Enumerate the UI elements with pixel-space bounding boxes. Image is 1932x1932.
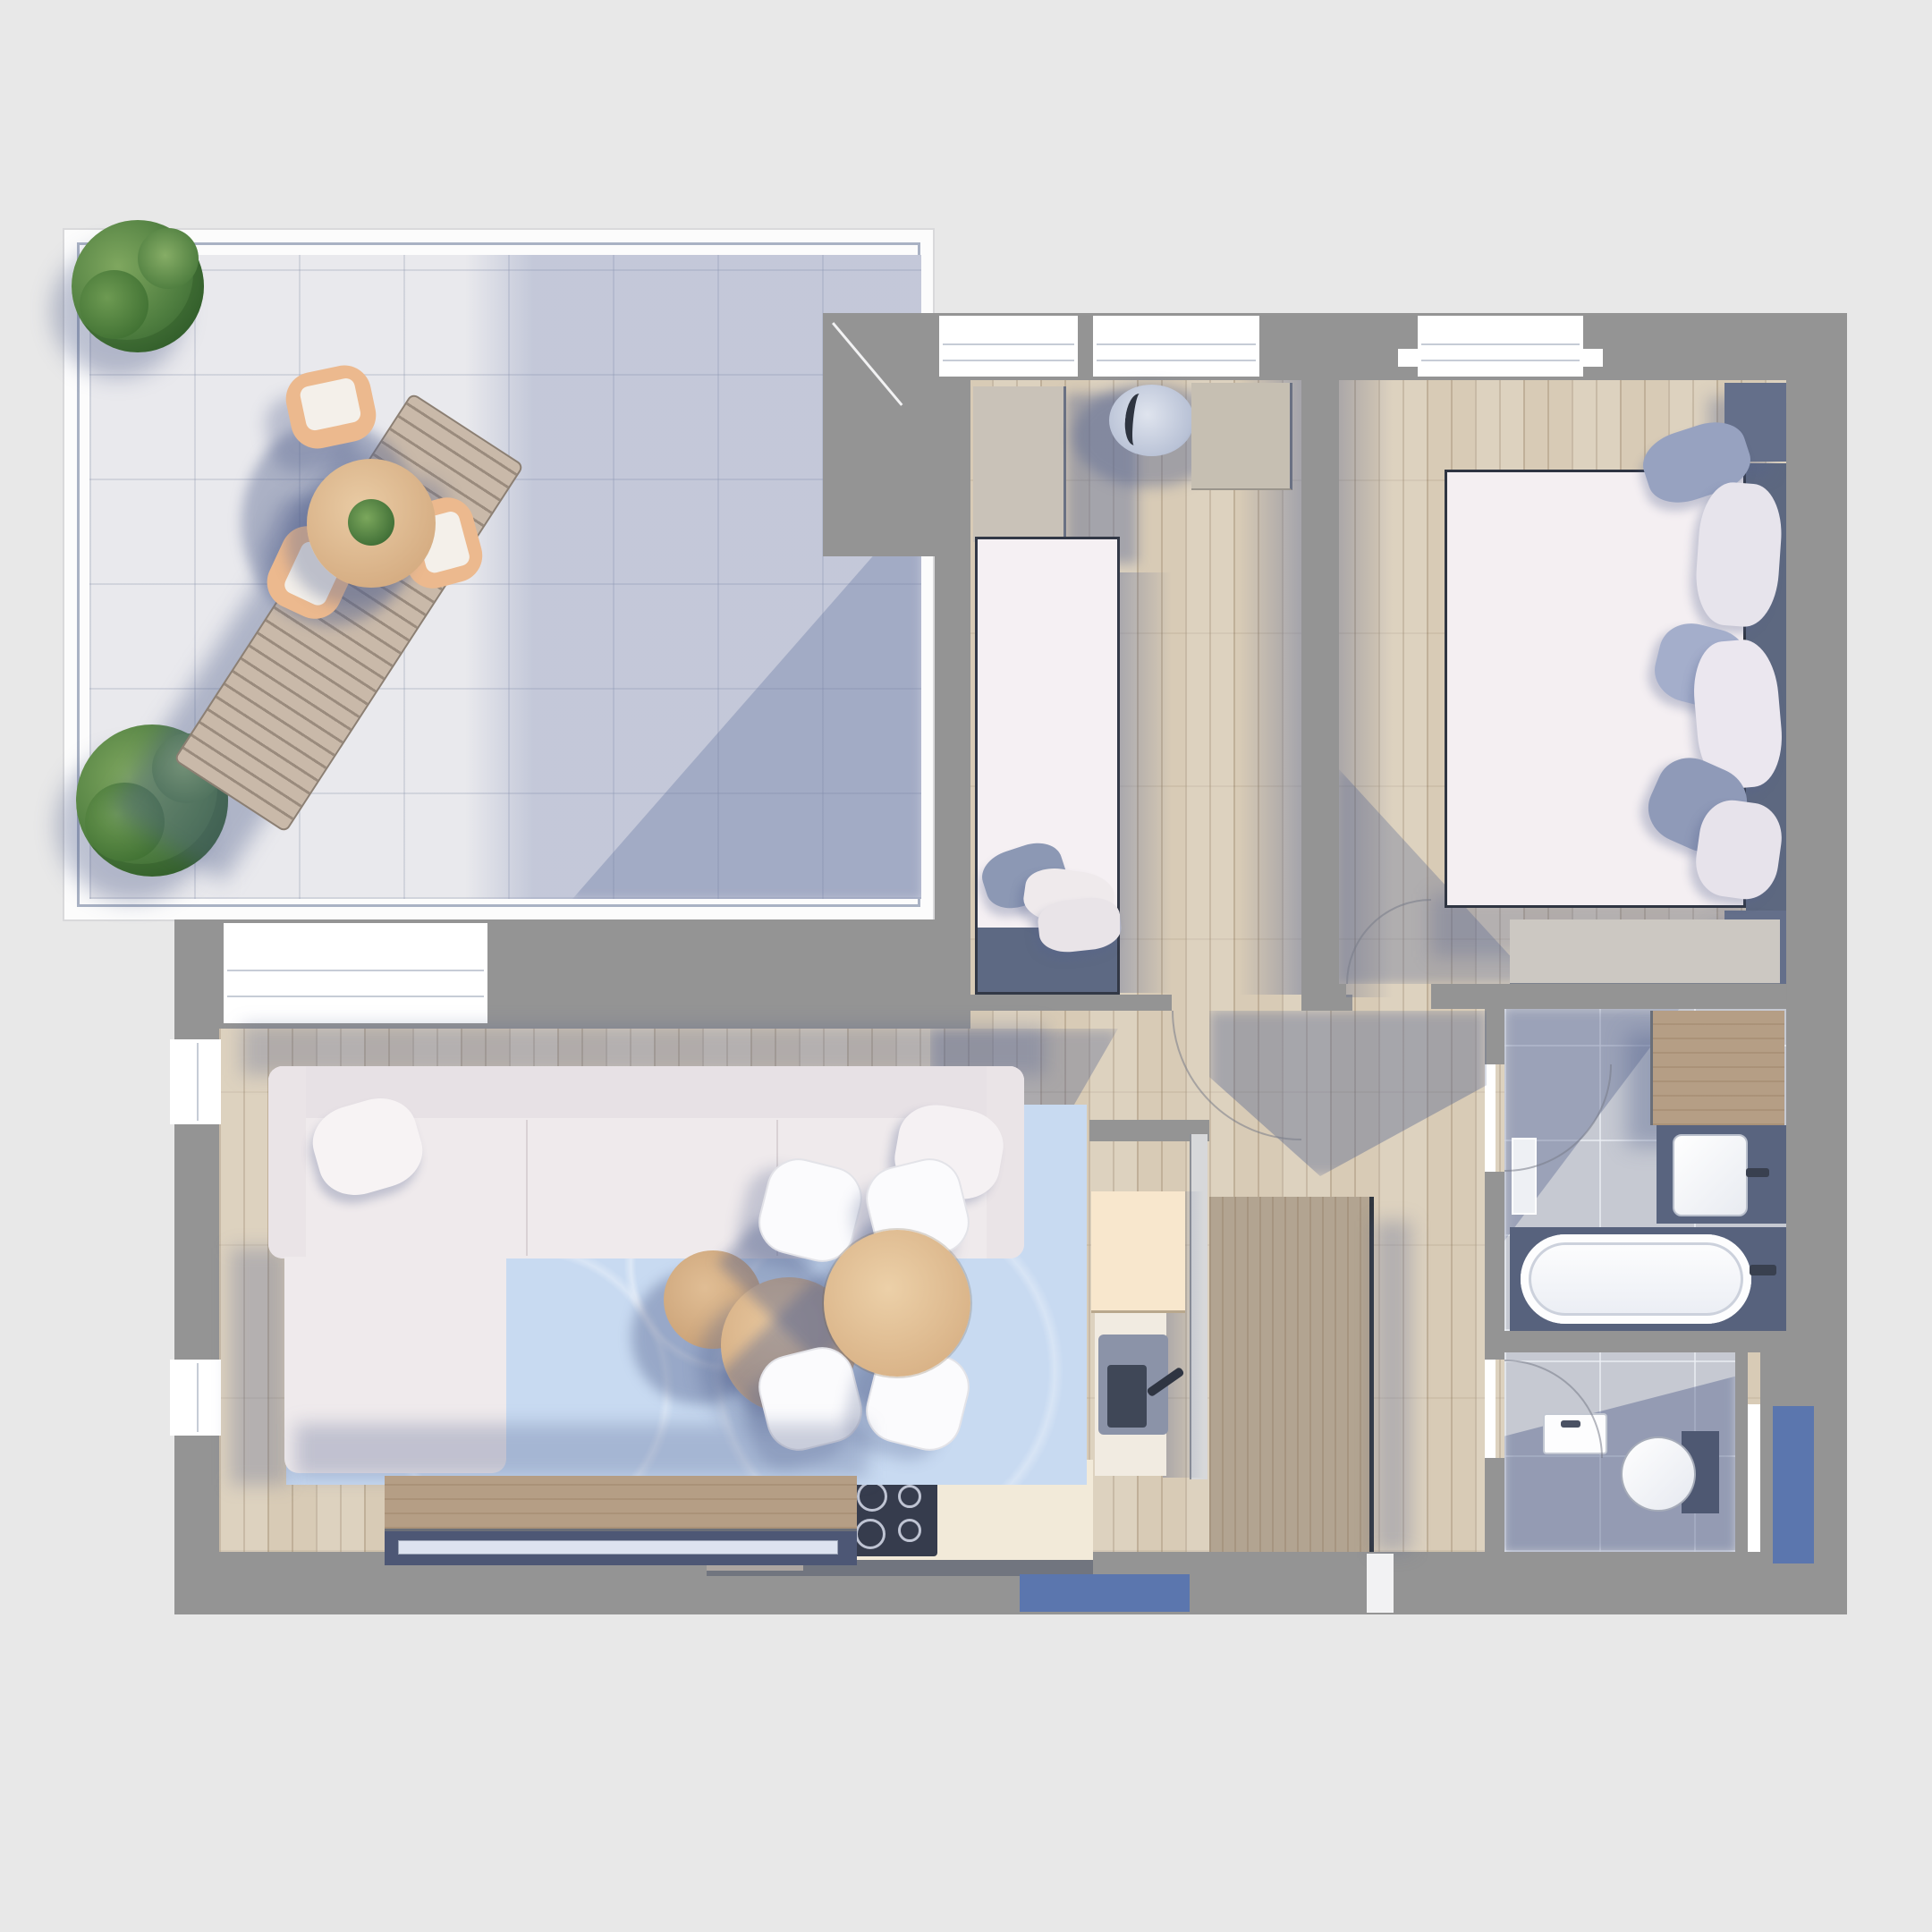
toilet-bowl [1621, 1436, 1696, 1512]
desk [973, 386, 1066, 542]
chair-cushion [299, 377, 361, 433]
wall-bath-left-a [1485, 1004, 1504, 1064]
wall-wc-left-b [1485, 1458, 1504, 1552]
entrance-mat [1020, 1574, 1190, 1612]
kidsroom-dresser [1191, 383, 1292, 490]
wall-kidsroom-bottom [970, 995, 1172, 1011]
bush-icon [72, 220, 204, 352]
bed-side-shadow [1120, 572, 1172, 993]
kitchen-tall-cabinet [1091, 1191, 1185, 1313]
sofa-armrest [268, 1066, 306, 1258]
wall-wc-left-a [1485, 1352, 1504, 1360]
hall-wardrobe [1209, 1197, 1374, 1552]
dining-table [824, 1230, 970, 1377]
wall-kidsroom-left [935, 313, 970, 1011]
wall-bath-wc [1485, 1331, 1786, 1352]
service-shaft [1773, 1406, 1814, 1563]
terrace-sliding-door [224, 923, 487, 1023]
tv-screen [398, 1540, 838, 1555]
single-bed [975, 537, 1120, 995]
bathtub [1521, 1234, 1751, 1324]
window-bedroom [1418, 316, 1583, 377]
window-kidsroom-left [939, 316, 1078, 377]
burner-icon [855, 1519, 885, 1549]
washbasin [1673, 1134, 1748, 1216]
table-plant-icon [348, 499, 394, 546]
wall-kidsroom-right [1301, 380, 1339, 1011]
window-sill [1583, 349, 1603, 367]
sofa-seam [526, 1120, 528, 1256]
bottom-wall-gap [1367, 1554, 1394, 1613]
burner-icon [898, 1485, 921, 1508]
basin-faucet-icon [1746, 1168, 1769, 1177]
bedroom-sideboard [1510, 919, 1780, 986]
bathroom-cabinet [1650, 1011, 1784, 1125]
cooktop [846, 1472, 937, 1556]
window-kidsroom-right [1093, 316, 1259, 377]
burner-icon [857, 1481, 887, 1512]
wall-bath-left-b [1485, 1172, 1504, 1352]
window-sill [1398, 349, 1418, 367]
wall-terrace-junction [823, 313, 935, 556]
wardrobe-shadow [1374, 1221, 1411, 1552]
wc-door-leaf [1485, 1360, 1496, 1458]
door-leaf-white [1748, 1404, 1760, 1552]
kitchen-sink-basin [1107, 1365, 1147, 1428]
tv-wall-shadow [295, 1424, 868, 1478]
window-living-left [170, 1039, 221, 1124]
window-living-left-lower [170, 1360, 221, 1436]
floor-plan-canvas [0, 0, 1932, 1932]
tub-faucet-icon [1750, 1265, 1776, 1275]
office-chair [1109, 385, 1194, 456]
wall-wc-right [1735, 1352, 1748, 1552]
chaise-side-shadow [231, 1248, 288, 1485]
wall-bedroom-bottom-a [1339, 984, 1346, 1009]
burner-icon [898, 1519, 921, 1542]
tv-lowboard [385, 1476, 857, 1531]
